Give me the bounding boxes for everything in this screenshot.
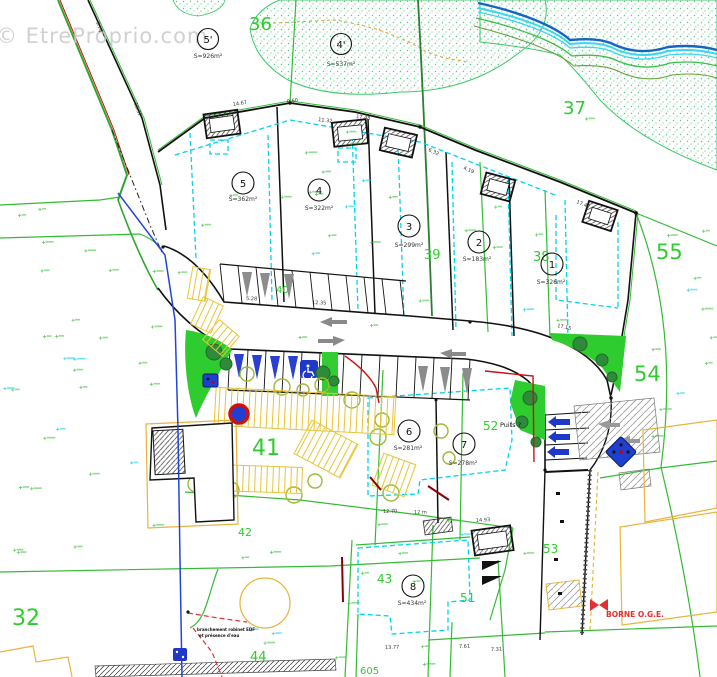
- svg-text:5': 5': [203, 35, 212, 46]
- svg-text:S=278m²: S=278m²: [449, 460, 478, 467]
- lot-marker-7: 7 S=278m²: [449, 433, 478, 467]
- lot-marker-6: 6 S=281m²: [394, 420, 423, 452]
- svg-text:4': 4': [336, 40, 345, 51]
- parking-arrows-east: [547, 416, 570, 458]
- parcel-label-52: 52: [483, 419, 498, 433]
- parcel-label-40: 40: [276, 285, 289, 296]
- dim: 7.31: [491, 647, 502, 653]
- svg-text:S=322m²: S=322m²: [305, 205, 334, 212]
- svg-text:1: 1: [549, 260, 555, 271]
- parcel-label-42: 42: [238, 526, 252, 539]
- dim: 4.19: [462, 165, 475, 175]
- existing-building: [146, 420, 238, 528]
- parcel-label-51: 51: [460, 591, 475, 605]
- lot-marker-2: 2 S=183m²: [463, 231, 492, 263]
- svg-text:4: 4: [316, 186, 322, 197]
- lot-marker-3: 3 S=299m²: [395, 215, 424, 249]
- watermark: © EtreProprio.com: [0, 24, 208, 48]
- parcel-label-605: 605: [360, 666, 379, 677]
- dim: 13.77: [385, 645, 400, 651]
- well-label: Puits ?: [500, 421, 521, 429]
- svg-text:5: 5: [240, 179, 246, 190]
- tree-icon: [418, 366, 472, 394]
- parcel-label-53: 53: [543, 542, 558, 556]
- utility-marker-icon: [173, 648, 187, 661]
- parcel-label-44: 44: [250, 650, 267, 665]
- svg-text:2: 2: [476, 238, 482, 249]
- parcel-label-37: 37: [563, 98, 586, 119]
- parcel-label-54: 54: [634, 362, 661, 386]
- svg-text:7: 7: [461, 440, 467, 451]
- utility-marker-icon: [203, 374, 218, 387]
- svg-text:S=326m²: S=326m²: [537, 279, 566, 286]
- svg-text:S=434m²: S=434m²: [398, 600, 427, 607]
- svg-text:6: 6: [406, 427, 412, 438]
- road-direction-arrows: [318, 317, 466, 359]
- svg-text:S=183m²: S=183m²: [463, 256, 492, 263]
- dim: 14.67: [232, 100, 247, 108]
- lot-marker-8: 8 S=434m²: [398, 575, 427, 607]
- borne-label: BORNE O.G.E.: [606, 610, 664, 619]
- handicap-parking-icon: [300, 360, 318, 380]
- dim: 12.35: [312, 300, 327, 306]
- parcel-label-55: 55: [656, 240, 683, 264]
- basin-marker: [230, 405, 248, 423]
- dim: 12 m: [414, 510, 427, 516]
- svg-text:8: 8: [410, 582, 416, 593]
- dim: 11.32: [318, 117, 333, 125]
- site-plan-svg: © EtreProprio.com 36 37 55 54 53 52 51 4…: [0, 0, 717, 677]
- dim: 0.60: [287, 98, 299, 105]
- lot-marker-4: 4 S=322m²: [305, 179, 334, 212]
- svg-text:S=281m²: S=281m²: [394, 445, 423, 452]
- parcel-label-36: 36: [249, 14, 272, 35]
- parcel-label-39: 39: [424, 248, 441, 263]
- svg-text:S=299m²: S=299m²: [395, 242, 424, 249]
- dim: 5.28: [246, 296, 257, 302]
- parcel-label-32: 32: [12, 606, 40, 631]
- dim: 6.32: [427, 147, 440, 157]
- dim: 18.37: [132, 102, 142, 117]
- dim: 12.70: [383, 509, 398, 515]
- lot-marker-5: 5 S=362m²: [229, 172, 258, 203]
- svg-text:S=362m²: S=362m²: [229, 196, 258, 203]
- dim: 17.15: [557, 323, 572, 332]
- site-plan-map: © EtreProprio.com 36 37 55 54 53 52 51 4…: [0, 0, 717, 677]
- parcel-label-41: 41: [252, 436, 280, 461]
- dim: 14.93: [476, 517, 491, 524]
- dim: 7.61: [459, 644, 470, 650]
- note-line2: et présence d'eau: [199, 633, 239, 638]
- note-line1: branchement robinet EDF: [197, 627, 255, 632]
- svg-text:S=926m²: S=926m²: [194, 53, 223, 60]
- parcel-label-43: 43: [377, 572, 392, 586]
- svg-text:3: 3: [406, 222, 412, 233]
- svg-text:S=537m²: S=537m²: [327, 61, 356, 68]
